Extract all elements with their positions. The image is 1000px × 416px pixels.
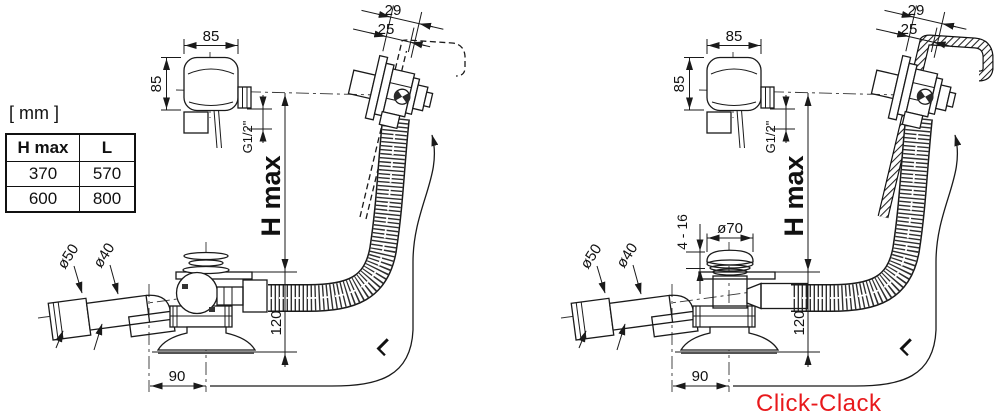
dim-120-label: 120	[268, 310, 285, 335]
units-label: [ mm ]	[9, 103, 59, 124]
spec-table-header-l: L	[80, 134, 136, 162]
dia-50-label: ø50	[577, 241, 605, 272]
dim-85-height-label: 85	[148, 76, 165, 93]
dim-90-label: 90	[169, 368, 186, 385]
dim-90-label: 90	[692, 368, 709, 385]
table-row: 370 570	[6, 162, 135, 187]
dim-120-label: 120	[791, 310, 808, 335]
dia-40-label: ø40	[613, 240, 641, 271]
hose-port	[217, 287, 243, 305]
spec-table-header-hmax: H max	[6, 134, 80, 162]
l-value-2: 800	[80, 187, 136, 213]
dim-25-label: 25	[378, 21, 395, 38]
drawing-canvas: 85 85 29 25 G1/2" H max ø50 ø40 120 90 L	[0, 0, 1000, 416]
dia-50-label: ø50	[54, 241, 82, 272]
length-label: L	[372, 335, 397, 360]
plug-range-label: 4 - 16	[674, 214, 690, 250]
hmax-value-2: 600	[6, 187, 80, 213]
dia-70-label: ø70	[717, 220, 743, 237]
table-row: 600 800	[6, 187, 135, 213]
diagram-right: 85 85 29 25 G1/2" H max ø50 ø40 120 90 L…	[561, 0, 988, 392]
spec-table-header-row: H max L	[6, 134, 135, 162]
shared-geometry-right	[561, 0, 973, 392]
l-value-1: 570	[80, 162, 136, 187]
click-clack-cap	[707, 250, 753, 265]
plug-body	[713, 276, 747, 308]
hmax-value-1: 370	[6, 162, 80, 187]
dim-85-width-label: 85	[203, 28, 220, 45]
thread-size-label: G1/2"	[763, 120, 778, 153]
plug-discs	[177, 253, 268, 314]
thread-size-label: G1/2"	[240, 120, 255, 153]
click-clack-caption: Click-Clack	[756, 390, 882, 416]
dim-85-height-label: 85	[671, 76, 688, 93]
dim-25-label: 25	[901, 21, 918, 38]
h-max-label: H max	[256, 155, 286, 236]
h-max-label: H max	[779, 155, 809, 236]
hose-adapter-taper	[747, 284, 761, 309]
hose-union-nut	[243, 280, 267, 312]
dim-29-label: 29	[908, 2, 925, 19]
technical-drawing: 85 85 29 25 G1/2" H max ø50 ø40 120 90 L	[0, 0, 1000, 416]
dim-85-width-label: 85	[726, 28, 743, 45]
dim-29-label: 29	[385, 2, 402, 19]
dia-40-label: ø40	[90, 240, 118, 271]
length-label: L	[895, 335, 920, 360]
spec-table: H max L 370 570 600 800	[5, 133, 136, 213]
